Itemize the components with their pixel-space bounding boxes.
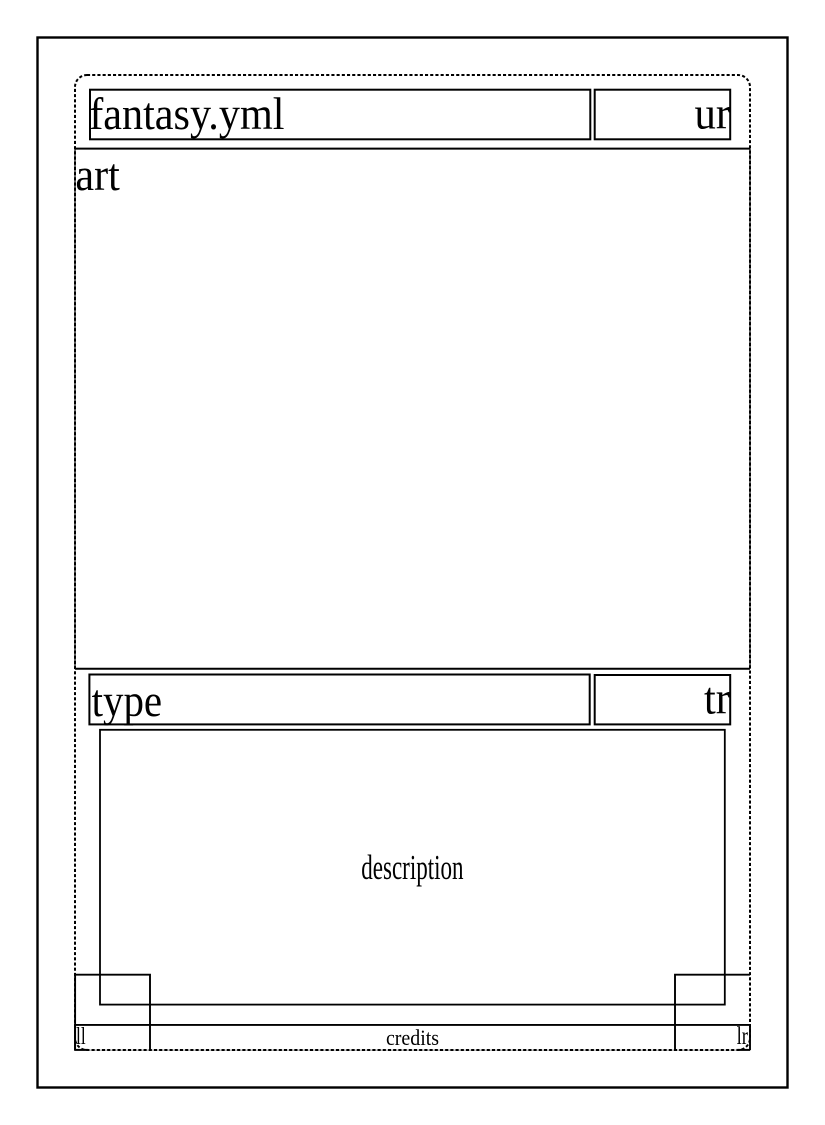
svg-text:tr: tr bbox=[704, 675, 730, 724]
svg-text:type: type bbox=[92, 677, 162, 726]
svg-text:credits: credits bbox=[386, 1025, 439, 1050]
svg-text:ur: ur bbox=[694, 90, 730, 139]
svg-text:ll: ll bbox=[76, 1022, 86, 1050]
svg-text:fantasy.yml: fantasy.yml bbox=[89, 90, 284, 140]
svg-text:art: art bbox=[75, 151, 119, 201]
svg-text:lr: lr bbox=[737, 1022, 749, 1050]
svg-text:description: description bbox=[361, 850, 463, 888]
